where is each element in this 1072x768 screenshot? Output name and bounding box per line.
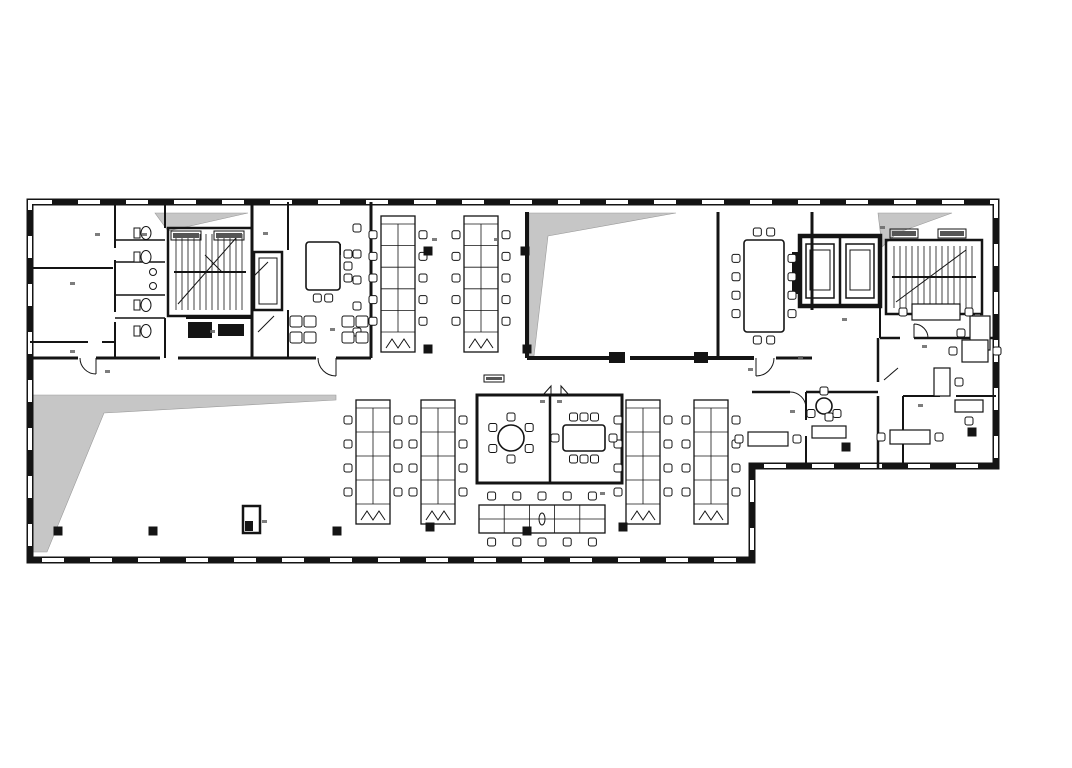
armchair	[290, 316, 302, 327]
task-chair	[614, 416, 622, 424]
task-chair	[682, 440, 690, 448]
structural-column	[619, 523, 628, 532]
task-chair	[664, 416, 672, 424]
task-chair	[732, 416, 740, 424]
task-chair	[353, 276, 361, 284]
meeting-table-rect	[306, 242, 340, 290]
task-chair	[353, 224, 361, 232]
structural-column	[424, 247, 433, 256]
task-chair	[664, 464, 672, 472]
task-chair	[965, 417, 973, 425]
task-chair	[325, 294, 333, 302]
floor-plan-canvas	[0, 0, 1072, 768]
structural-column	[149, 527, 158, 536]
task-chair	[369, 252, 377, 260]
task-chair	[955, 378, 963, 386]
structure-rect	[254, 252, 282, 310]
task-chair	[563, 492, 571, 500]
office-desk	[890, 430, 930, 444]
task-chair	[788, 273, 796, 281]
room-number-mark	[918, 404, 923, 407]
task-chair	[570, 413, 578, 421]
task-chair	[313, 294, 321, 302]
task-chair	[732, 310, 740, 318]
room-number-mark	[975, 314, 980, 317]
room-number-mark	[798, 356, 803, 359]
solid-block	[609, 352, 625, 363]
door-leaf-line	[258, 316, 274, 332]
armchair	[304, 316, 316, 327]
task-chair	[394, 464, 402, 472]
toilet-icon	[134, 252, 140, 262]
task-chair	[788, 254, 796, 262]
task-chair	[735, 435, 743, 443]
task-chair	[614, 488, 622, 496]
structural-column	[424, 345, 433, 354]
solid-block	[188, 322, 212, 338]
task-chair	[488, 538, 496, 546]
structural-column	[333, 527, 342, 536]
armchair	[356, 332, 368, 343]
task-chair	[807, 410, 815, 418]
sink-icon	[150, 269, 157, 276]
structural-column	[842, 443, 851, 452]
task-chair	[965, 308, 973, 316]
task-chair	[580, 413, 588, 421]
task-chair	[419, 274, 427, 282]
task-chair	[513, 492, 521, 500]
meeting-table-round	[816, 398, 832, 414]
task-chair	[344, 250, 352, 258]
task-chair	[459, 440, 467, 448]
task-chair	[344, 488, 352, 496]
task-chair	[788, 310, 796, 318]
room-number-mark	[842, 318, 847, 321]
task-chair	[507, 455, 515, 463]
task-chair	[452, 274, 460, 282]
solid-block	[245, 521, 253, 531]
task-chair	[957, 329, 965, 337]
elevation-label-text	[940, 231, 964, 236]
task-chair	[588, 538, 596, 546]
task-chair	[452, 296, 460, 304]
task-chair	[353, 250, 361, 258]
task-chair	[394, 440, 402, 448]
task-chair	[825, 413, 833, 421]
room-number-mark	[70, 350, 75, 353]
task-chair	[525, 424, 533, 432]
task-chair	[732, 488, 740, 496]
task-chair	[452, 252, 460, 260]
task-chair	[788, 291, 796, 299]
sink-icon	[150, 283, 157, 290]
structural-column	[523, 345, 532, 354]
armchair	[356, 316, 368, 327]
task-chair	[489, 424, 497, 432]
armchair	[290, 332, 302, 343]
room-number-mark	[262, 520, 267, 523]
task-chair	[949, 347, 957, 355]
task-chair	[344, 416, 352, 424]
task-chair	[588, 492, 596, 500]
meeting-table-round	[498, 425, 524, 451]
task-chair	[419, 231, 427, 239]
office-desk	[912, 304, 960, 320]
task-chair	[664, 440, 672, 448]
room-number-mark	[432, 238, 437, 241]
office-desk	[955, 400, 983, 412]
structural-column	[426, 523, 435, 532]
room-number-mark	[922, 345, 927, 348]
door-swing-arc	[318, 358, 336, 376]
elevation-label-text	[892, 231, 916, 236]
task-chair	[369, 296, 377, 304]
room-number-mark	[105, 370, 110, 373]
task-chair	[732, 291, 740, 299]
gray-void-zone	[529, 213, 676, 356]
task-chair	[502, 274, 510, 282]
task-chair	[753, 228, 761, 236]
task-chair	[502, 296, 510, 304]
task-chair	[419, 296, 427, 304]
task-chair	[551, 434, 559, 442]
task-chair	[682, 416, 690, 424]
task-chair	[488, 492, 496, 500]
task-chair	[502, 252, 510, 260]
room-number-mark	[210, 330, 215, 333]
task-chair	[409, 464, 417, 472]
armchair	[342, 316, 354, 327]
elevation-label-text	[173, 233, 199, 238]
task-chair	[394, 488, 402, 496]
task-chair	[935, 433, 943, 441]
task-chair	[344, 262, 352, 270]
room-number-mark	[748, 368, 753, 371]
task-chair	[344, 464, 352, 472]
elevation-label-text	[216, 233, 242, 238]
office-desk	[934, 368, 950, 396]
structural-column	[521, 247, 530, 256]
task-chair	[459, 416, 467, 424]
solid-block	[218, 324, 244, 336]
toilet-icon	[141, 299, 151, 312]
task-chair	[409, 488, 417, 496]
gray-void-zone	[33, 395, 336, 552]
toilet-icon	[134, 228, 140, 238]
task-chair	[525, 445, 533, 453]
task-chair	[369, 231, 377, 239]
task-chair	[682, 488, 690, 496]
armchair	[342, 332, 354, 343]
room-number-mark	[330, 328, 335, 331]
toilet-icon	[141, 251, 151, 264]
task-chair	[591, 413, 599, 421]
task-chair	[877, 433, 885, 441]
door-swing-arc	[80, 358, 96, 374]
door-swing-arc	[790, 392, 806, 408]
task-chair	[459, 464, 467, 472]
room-number-mark	[142, 233, 147, 236]
task-chair	[609, 434, 617, 442]
structural-column	[54, 527, 63, 536]
task-chair	[732, 464, 740, 472]
structure-rect	[850, 250, 870, 290]
task-chair	[820, 387, 828, 395]
task-chair	[353, 302, 361, 310]
task-chair	[502, 231, 510, 239]
gray-void-zone	[878, 213, 952, 247]
task-chair	[502, 317, 510, 325]
solid-block	[694, 352, 708, 363]
door-swing-arc	[756, 358, 774, 376]
task-chair	[614, 464, 622, 472]
office-desk	[812, 426, 846, 438]
room-number-mark	[557, 400, 562, 403]
room-number-mark	[880, 226, 885, 229]
door-leaf-line	[884, 368, 898, 380]
task-chair	[993, 347, 1001, 355]
task-chair	[767, 336, 775, 344]
task-chair	[369, 274, 377, 282]
task-chair	[538, 538, 546, 546]
task-chair	[459, 488, 467, 496]
office-desk	[748, 432, 788, 446]
task-chair	[507, 413, 515, 421]
task-chair	[419, 317, 427, 325]
task-chair	[452, 231, 460, 239]
room-number-mark	[600, 492, 605, 495]
toilet-icon	[134, 300, 140, 310]
task-chair	[682, 464, 690, 472]
task-chair	[369, 317, 377, 325]
task-chair	[344, 440, 352, 448]
elevation-label-text	[486, 377, 502, 380]
task-chair	[580, 455, 588, 463]
door-swing-arc	[914, 324, 928, 338]
task-chair	[591, 455, 599, 463]
room-number-mark	[263, 232, 268, 235]
task-chair	[753, 336, 761, 344]
room-number-mark	[540, 400, 545, 403]
toilet-icon	[141, 325, 151, 338]
task-chair	[452, 317, 460, 325]
structural-column	[968, 428, 977, 437]
floor-plan-page	[0, 0, 1072, 768]
room-number-mark	[70, 282, 75, 285]
meeting-table-rect	[563, 425, 605, 451]
meeting-table-rect	[744, 240, 784, 332]
task-chair	[409, 416, 417, 424]
toilet-icon	[134, 326, 140, 336]
task-chair	[732, 273, 740, 281]
task-chair	[489, 445, 497, 453]
task-chair	[409, 440, 417, 448]
room-number-mark	[95, 233, 100, 236]
task-chair	[344, 274, 352, 282]
task-chair	[664, 488, 672, 496]
task-chair	[732, 254, 740, 262]
structural-column	[523, 527, 532, 536]
task-chair	[394, 416, 402, 424]
structure-rect	[259, 258, 277, 304]
task-chair	[767, 228, 775, 236]
task-chair	[563, 538, 571, 546]
task-chair	[833, 410, 841, 418]
room-number-mark	[790, 410, 795, 413]
task-chair	[513, 538, 521, 546]
task-chair	[570, 455, 578, 463]
task-chair	[899, 308, 907, 316]
office-desk	[962, 340, 988, 362]
task-chair	[538, 492, 546, 500]
room-number-mark	[494, 238, 499, 241]
armchair	[304, 332, 316, 343]
task-chair	[793, 435, 801, 443]
